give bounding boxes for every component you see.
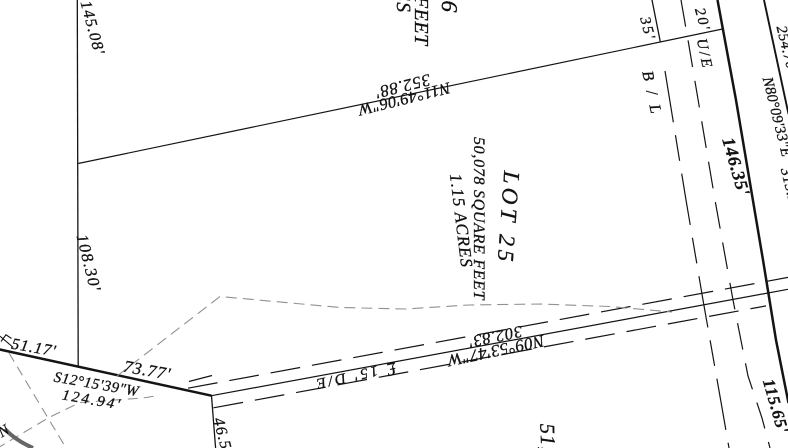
- svg-text:B/L: B/L: [638, 69, 666, 124]
- svg-text:115.65': 115.65': [759, 377, 788, 436]
- svg-text:46.55': 46.55': [209, 416, 237, 448]
- svg-text:N: N: [0, 422, 13, 442]
- svg-text:1.15 ACRES: 1.15 ACRES: [388, 0, 414, 13]
- svg-text:U/E: U/E: [693, 37, 715, 71]
- svg-text:50,078 SQUARE FEET: 50,078 SQUARE FEET: [470, 137, 487, 301]
- svg-text:35': 35': [636, 14, 658, 43]
- svg-text:145.08': 145.08': [77, 0, 108, 57]
- svg-text:146.35': 146.35': [718, 135, 754, 198]
- svg-text:LOT 25: LOT 25: [493, 169, 525, 266]
- svg-text:73.77': 73.77': [122, 357, 172, 384]
- svg-text:315.28': 315.28': [777, 165, 788, 217]
- svg-text:51,0: 51,0: [535, 423, 560, 448]
- svg-text:51.17': 51.17': [10, 336, 58, 361]
- svg-text:LOT 26: LOT 26: [436, 0, 468, 17]
- svg-text:20': 20': [691, 6, 713, 34]
